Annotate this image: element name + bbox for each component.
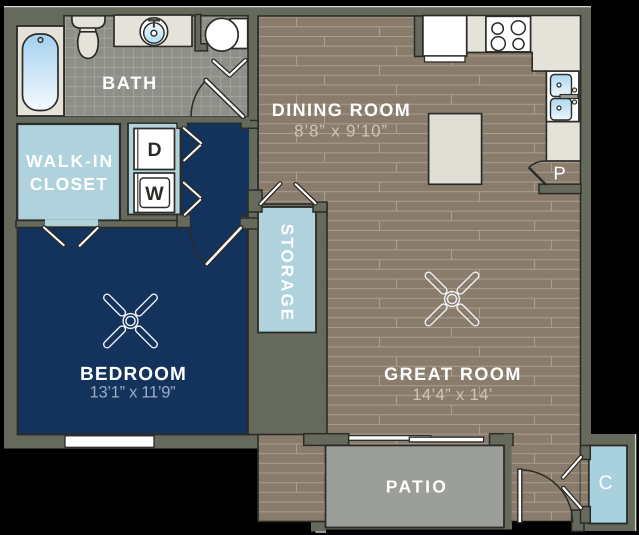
svg-text:P: P (553, 163, 565, 184)
svg-text:BATH: BATH (102, 73, 158, 93)
svg-text:STORAGE: STORAGE (278, 224, 297, 322)
svg-text:WALK-IN: WALK-IN (26, 151, 114, 171)
svg-text:BEDROOM: BEDROOM (80, 364, 187, 385)
svg-text:13’1” x 11’9”: 13’1” x 11’9” (90, 384, 176, 402)
svg-text:GREAT ROOM: GREAT ROOM (384, 364, 522, 384)
svg-text:14’4” x 14’: 14’4” x 14’ (412, 386, 493, 404)
svg-text:PATIO: PATIO (386, 477, 448, 497)
svg-text:DINING ROOM: DINING ROOM (272, 100, 411, 120)
svg-text:CLOSET: CLOSET (30, 174, 108, 194)
svg-text:C: C (598, 472, 612, 494)
svg-text:8’8” x 9’10”: 8’8” x 9’10” (294, 122, 388, 141)
svg-text:D: D (147, 139, 161, 161)
svg-text:W: W (145, 183, 164, 205)
